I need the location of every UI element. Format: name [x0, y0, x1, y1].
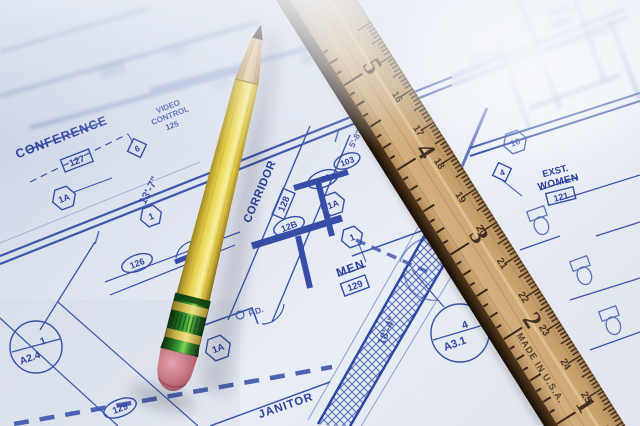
depth-of-field-haze — [0, 0, 640, 160]
photo-canvas: EXST. MEN CONFERENCE 127 VIDEO CONTROL 1… — [0, 0, 640, 426]
